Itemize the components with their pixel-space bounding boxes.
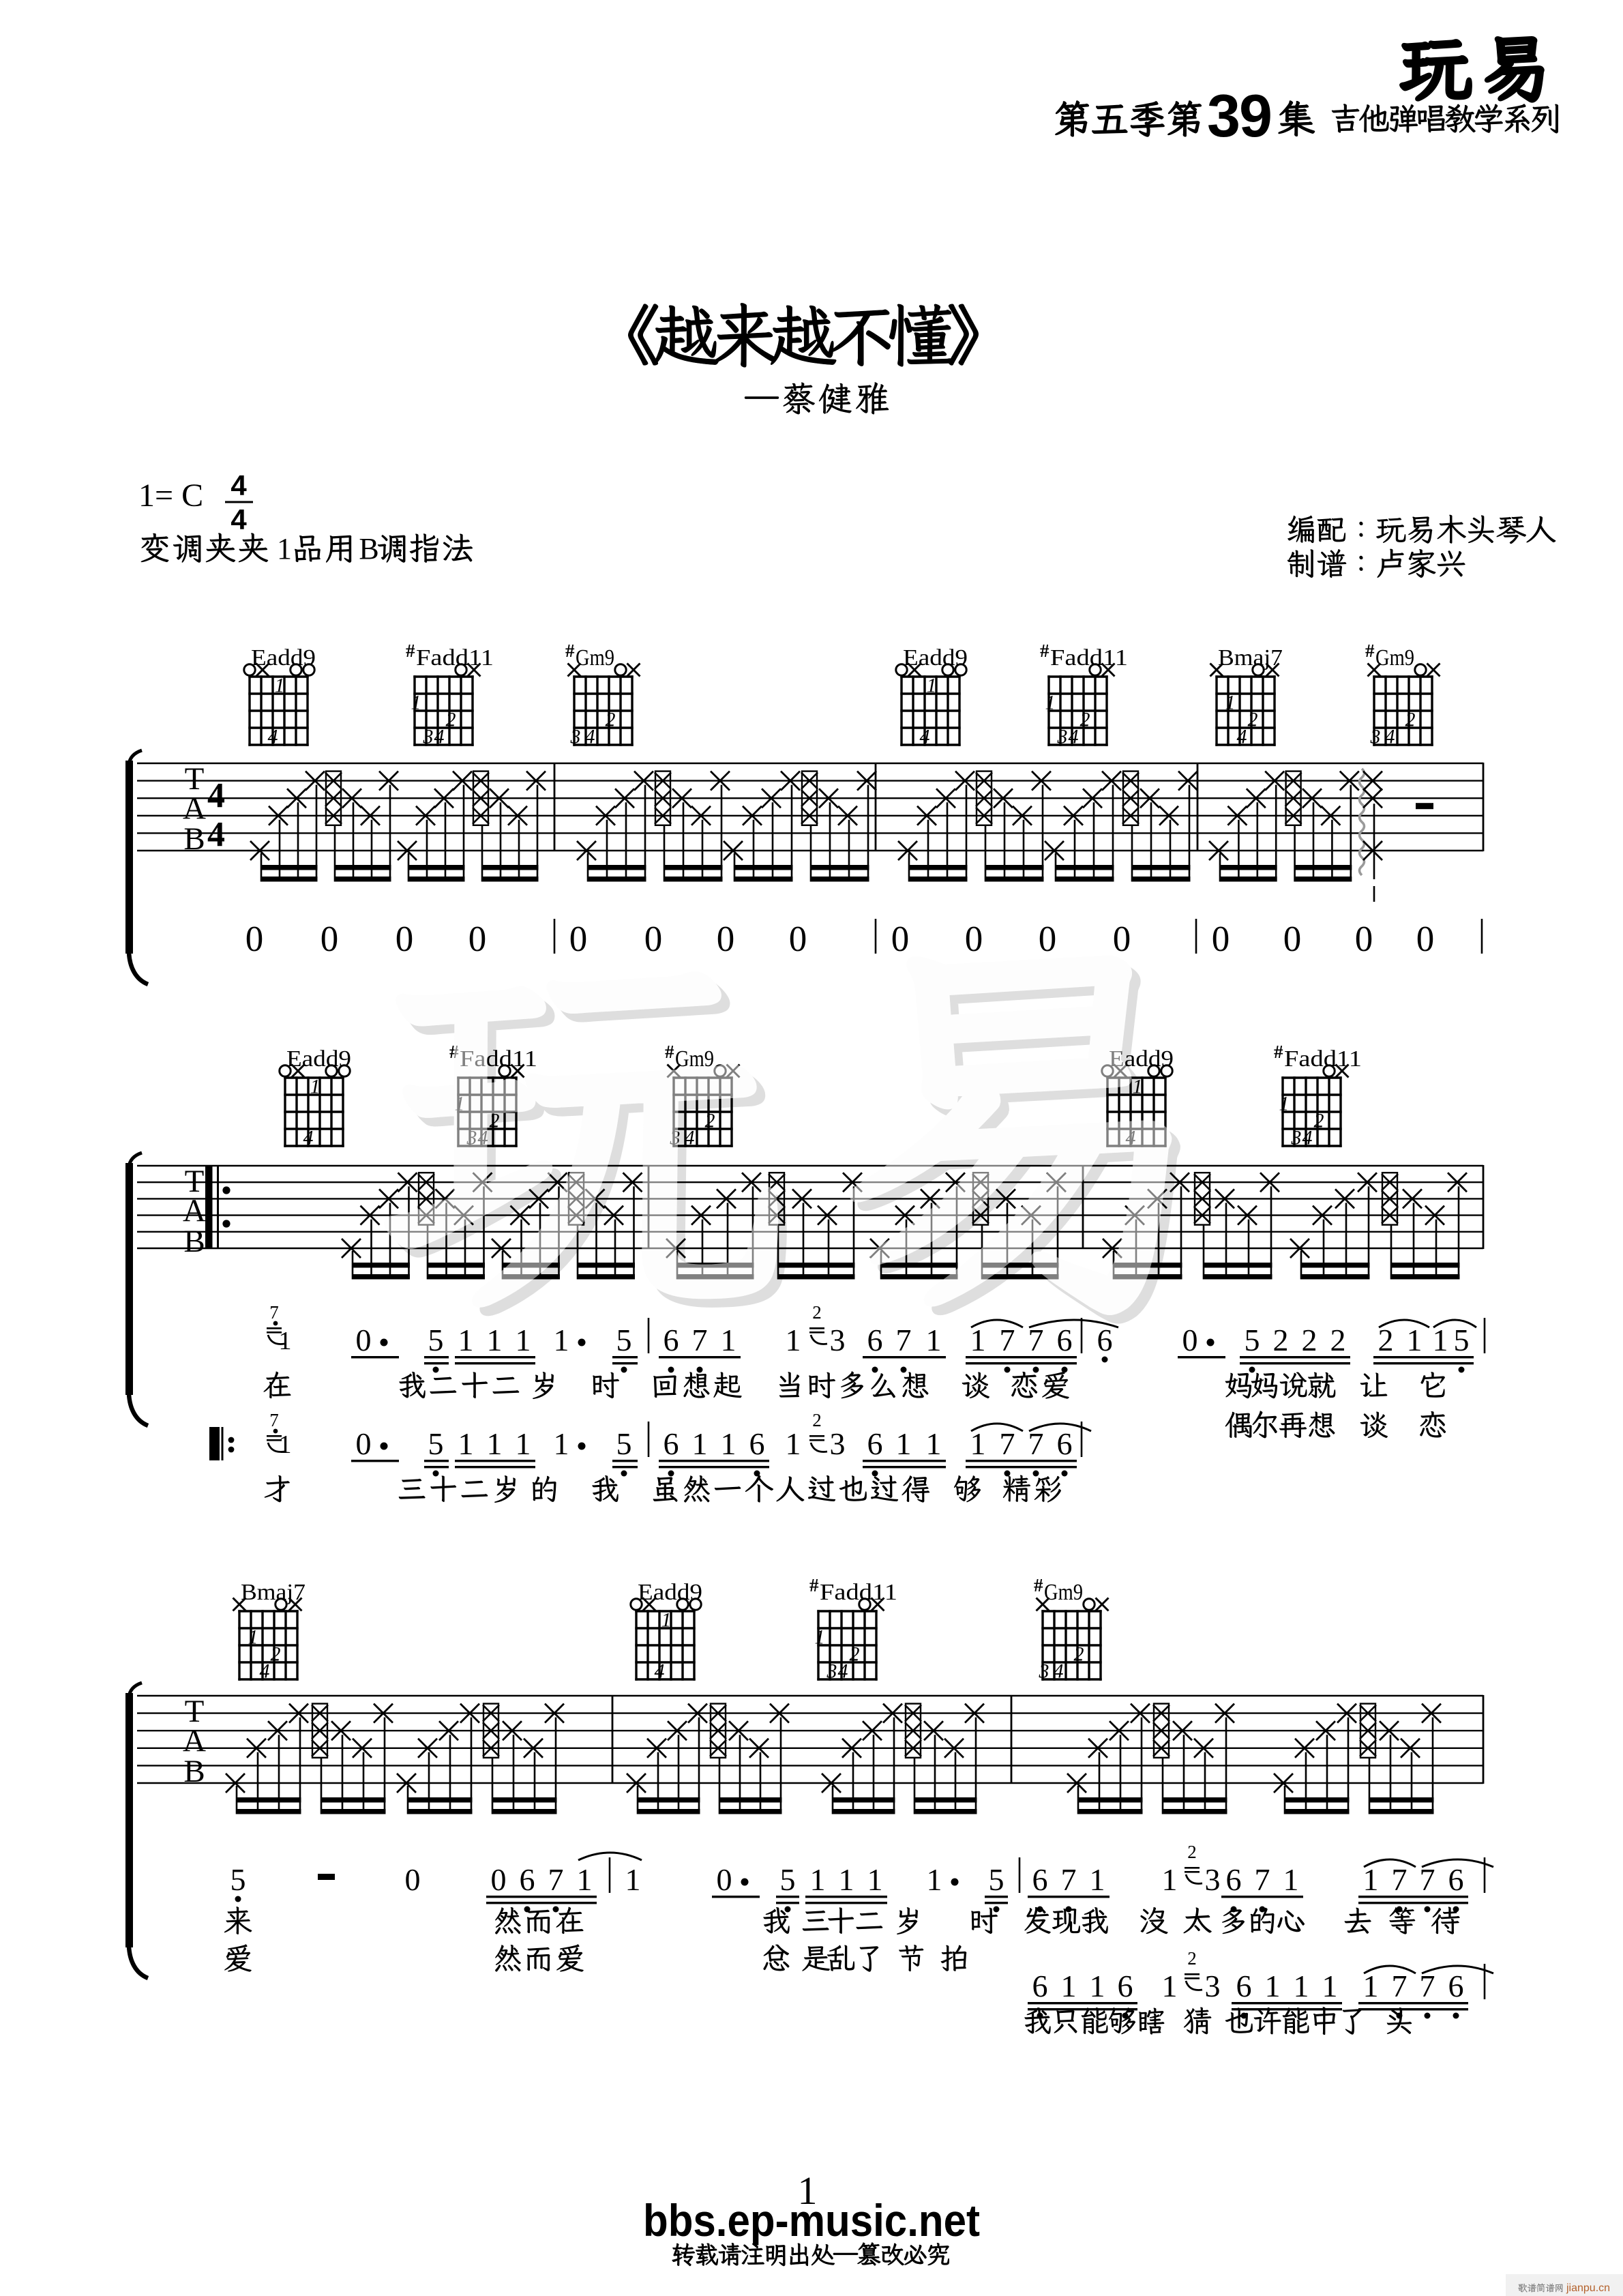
svg-text:1: 1 [896, 1426, 912, 1461]
svg-text:1: 1 [839, 1862, 854, 1897]
svg-text:1: 1 [1433, 1323, 1448, 1357]
svg-text:4: 4 [838, 1660, 848, 1683]
svg-text:1: 1 [926, 1426, 942, 1461]
svg-text:1: 1 [786, 1323, 801, 1357]
svg-text:2: 2 [1302, 1323, 1317, 1357]
svg-text:1: 1 [721, 1426, 736, 1461]
svg-text:0: 0 [717, 919, 735, 959]
svg-text:0: 0 [644, 919, 663, 959]
svg-text:3: 3 [570, 726, 581, 748]
svg-text:1= C: 1= C [138, 477, 203, 514]
svg-text:1: 1 [1265, 1969, 1281, 2003]
svg-text:1: 1 [867, 1862, 883, 1897]
svg-text:1: 1 [927, 1862, 942, 1897]
svg-text:5: 5 [428, 1323, 444, 1357]
svg-text:1: 1 [458, 1323, 474, 1357]
svg-text:1: 1 [487, 1426, 503, 1461]
svg-text:0: 0 [717, 1862, 732, 1897]
svg-text:3: 3 [827, 1660, 837, 1683]
svg-text:2: 2 [446, 709, 456, 731]
svg-text:1: 1 [926, 1323, 942, 1357]
svg-text:6: 6 [1057, 1426, 1073, 1461]
svg-text:0: 0 [356, 1323, 372, 1357]
svg-text:7: 7 [269, 1410, 279, 1430]
svg-text:1: 1 [279, 1327, 292, 1355]
svg-text:1: 1 [692, 1426, 708, 1461]
svg-text:1: 1 [810, 1862, 826, 1897]
svg-text:1: 1 [786, 1426, 801, 1461]
svg-text:6: 6 [1236, 1969, 1252, 2003]
svg-text:3: 3 [830, 1323, 846, 1357]
svg-text:0: 0 [356, 1426, 372, 1461]
svg-text:6: 6 [1118, 1969, 1133, 2003]
svg-text:1: 1 [970, 1426, 986, 1461]
svg-text:3: 3 [1039, 1660, 1049, 1683]
svg-text:1: 1 [458, 1426, 474, 1461]
svg-text:4: 4 [920, 726, 930, 748]
svg-text:2: 2 [705, 1110, 715, 1132]
svg-text:#: # [1040, 641, 1049, 661]
svg-text:7: 7 [1420, 1969, 1435, 2003]
svg-text:4: 4 [207, 776, 225, 815]
svg-text:#: # [809, 1575, 819, 1595]
svg-text:3: 3 [1205, 1969, 1221, 2003]
svg-text:7: 7 [1255, 1862, 1270, 1897]
svg-text:B: B [183, 821, 205, 857]
svg-text:6: 6 [1032, 1862, 1048, 1897]
svg-text:Fadd11: Fadd11 [416, 645, 494, 671]
svg-text:#: # [665, 1042, 674, 1062]
svg-text:4: 4 [1237, 726, 1247, 748]
svg-text:0: 0 [396, 919, 414, 959]
svg-text:2: 2 [1187, 1948, 1197, 1969]
svg-text:1: 1 [277, 532, 292, 565]
svg-text:4: 4 [230, 503, 247, 535]
svg-text:6: 6 [1057, 1323, 1073, 1357]
svg-text:jianpu.cn: jianpu.cn [1566, 2282, 1610, 2294]
svg-text:7: 7 [1061, 1862, 1077, 1897]
svg-text:B: B [359, 532, 378, 565]
svg-text:0: 0 [321, 919, 339, 959]
svg-text:1: 1 [516, 1426, 531, 1461]
svg-text:4: 4 [1302, 1127, 1313, 1149]
svg-text:4: 4 [1054, 1660, 1064, 1683]
svg-text:6: 6 [520, 1862, 535, 1897]
svg-text:1: 1 [487, 1323, 503, 1357]
svg-text:1: 1 [248, 1626, 258, 1649]
svg-text:2: 2 [1330, 1323, 1346, 1357]
svg-text:B: B [183, 1754, 205, 1789]
svg-text:3: 3 [1057, 726, 1068, 748]
svg-text:3: 3 [830, 1426, 846, 1461]
svg-text:Eadd9: Eadd9 [286, 1046, 351, 1072]
svg-text:5: 5 [428, 1426, 444, 1461]
svg-text:4: 4 [685, 1127, 695, 1149]
svg-text:2: 2 [1074, 1643, 1084, 1666]
svg-text:1: 1 [815, 1626, 825, 1649]
svg-text:1: 1 [1090, 1969, 1105, 2003]
svg-text:1: 1 [1322, 1969, 1338, 2003]
svg-text:5: 5 [989, 1862, 1004, 1897]
svg-text:1: 1 [661, 1609, 672, 1632]
svg-text:6: 6 [867, 1323, 883, 1357]
svg-text:2: 2 [812, 1302, 822, 1323]
svg-text:4: 4 [268, 726, 278, 748]
svg-text:2: 2 [1378, 1323, 1394, 1357]
svg-text:6: 6 [1448, 1969, 1464, 2003]
svg-text:1: 1 [1061, 1969, 1077, 2003]
svg-text:6: 6 [867, 1426, 883, 1461]
svg-text:Fadd11: Fadd11 [820, 1580, 897, 1605]
svg-text:5: 5 [616, 1426, 632, 1461]
svg-text:0: 0 [965, 919, 983, 959]
svg-text:2: 2 [271, 1643, 281, 1666]
svg-text:1: 1 [625, 1862, 641, 1897]
svg-text:7: 7 [1000, 1426, 1015, 1461]
svg-text:3: 3 [1291, 1127, 1302, 1149]
svg-text:0: 0 [1039, 919, 1057, 959]
svg-text:1: 1 [1225, 692, 1236, 714]
svg-text:0: 0 [891, 919, 910, 959]
svg-text:#: # [1034, 1575, 1043, 1595]
svg-text:1: 1 [275, 675, 285, 697]
svg-text:0: 0 [1283, 919, 1302, 959]
svg-text:2: 2 [1273, 1323, 1289, 1357]
svg-text:1: 1 [411, 692, 421, 714]
svg-text:7: 7 [1420, 1862, 1435, 1897]
svg-text:6: 6 [1032, 1969, 1048, 2003]
svg-text:0: 0 [1182, 1323, 1198, 1357]
svg-text:1: 1 [1279, 1093, 1290, 1115]
svg-text:4: 4 [303, 1127, 314, 1149]
svg-text:1: 1 [554, 1426, 569, 1461]
svg-text:0: 0 [569, 919, 588, 959]
svg-text:4: 4 [655, 1660, 665, 1683]
svg-text:7: 7 [269, 1302, 279, 1323]
svg-text:Gm9: Gm9 [1375, 645, 1414, 671]
svg-text:2: 2 [850, 1643, 860, 1666]
svg-text:1: 1 [279, 1430, 292, 1459]
svg-text:Gm9: Gm9 [576, 645, 614, 671]
svg-text:Eadd9: Eadd9 [903, 645, 968, 671]
svg-text:6: 6 [749, 1426, 765, 1461]
svg-text:5: 5 [780, 1862, 796, 1897]
svg-text:1: 1 [1090, 1862, 1105, 1897]
svg-text:1: 1 [516, 1323, 531, 1357]
svg-text:1: 1 [1133, 1076, 1143, 1098]
svg-text:1: 1 [1294, 1969, 1309, 2003]
svg-text:4: 4 [434, 726, 445, 748]
svg-text:1: 1 [927, 675, 937, 697]
svg-text:7: 7 [1392, 1862, 1408, 1897]
svg-text:2: 2 [812, 1410, 822, 1430]
svg-text:B: B [183, 1224, 205, 1259]
svg-text:39: 39 [1207, 82, 1271, 149]
svg-text:1: 1 [1363, 1969, 1379, 2003]
svg-text:Eadd9: Eadd9 [251, 645, 316, 671]
svg-text:4: 4 [585, 726, 595, 748]
svg-text:7: 7 [896, 1323, 912, 1357]
svg-text:1: 1 [310, 1076, 321, 1098]
svg-text:Bmaj7: Bmaj7 [241, 1580, 306, 1605]
svg-text:1: 1 [1363, 1862, 1379, 1897]
svg-text:6: 6 [1226, 1862, 1242, 1897]
svg-text:Fadd11: Fadd11 [1050, 645, 1128, 671]
svg-text:0: 0 [1416, 919, 1435, 959]
svg-text:2: 2 [1187, 1842, 1197, 1862]
svg-text:5: 5 [230, 1862, 246, 1897]
svg-text:4: 4 [207, 815, 225, 854]
svg-text:2: 2 [1080, 709, 1090, 731]
svg-text:4: 4 [1385, 726, 1395, 748]
svg-text:#: # [565, 641, 575, 661]
svg-text:1: 1 [1162, 1862, 1178, 1897]
svg-text:1: 1 [721, 1323, 736, 1357]
svg-text:2: 2 [1248, 709, 1258, 731]
svg-text:Fadd11: Fadd11 [1284, 1046, 1362, 1072]
svg-text:Bmaj7: Bmaj7 [1218, 645, 1283, 671]
svg-text:1: 1 [1283, 1862, 1299, 1897]
svg-text:bbs.ep-music.net: bbs.ep-music.net [643, 2195, 980, 2246]
svg-text:0: 0 [468, 919, 487, 959]
svg-text:7: 7 [1000, 1323, 1015, 1357]
svg-text:7: 7 [1392, 1969, 1408, 2003]
svg-text:6: 6 [664, 1323, 679, 1357]
svg-text:Gm9: Gm9 [1044, 1580, 1083, 1605]
svg-text:2: 2 [1314, 1110, 1324, 1132]
svg-text:0: 0 [1113, 919, 1131, 959]
svg-text:0: 0 [1212, 919, 1230, 959]
svg-text:3: 3 [1370, 726, 1381, 748]
svg-text:5: 5 [1454, 1323, 1470, 1357]
svg-text:0: 0 [245, 919, 264, 959]
svg-text:#: # [1365, 641, 1375, 661]
svg-text:7: 7 [548, 1862, 564, 1897]
svg-text:5: 5 [1245, 1323, 1260, 1357]
svg-text:2: 2 [1405, 709, 1416, 731]
svg-text:0: 0 [789, 919, 807, 959]
svg-text:1: 1 [970, 1323, 986, 1357]
svg-text:1: 1 [577, 1862, 593, 1897]
svg-text:4: 4 [230, 469, 247, 501]
svg-text:1: 1 [1407, 1323, 1423, 1357]
svg-text:0: 0 [1355, 919, 1373, 959]
svg-text:5: 5 [616, 1323, 632, 1357]
svg-text:4: 4 [260, 1660, 270, 1683]
svg-text:4: 4 [1069, 726, 1079, 748]
svg-text:3: 3 [1205, 1862, 1221, 1897]
svg-text:0: 0 [491, 1862, 507, 1897]
svg-text:6: 6 [1097, 1323, 1113, 1357]
svg-text:1: 1 [1162, 1969, 1178, 2003]
svg-text:1: 1 [1045, 692, 1056, 714]
svg-text:Eadd9: Eadd9 [638, 1580, 702, 1605]
svg-text:6: 6 [1448, 1862, 1464, 1897]
svg-text:7: 7 [692, 1323, 708, 1357]
svg-text:0: 0 [405, 1862, 421, 1897]
svg-text:3: 3 [423, 726, 434, 748]
svg-text:6: 6 [664, 1426, 679, 1461]
svg-text:1: 1 [554, 1323, 569, 1357]
svg-text:2: 2 [606, 709, 616, 731]
svg-text:#: # [406, 641, 415, 661]
svg-text:#: # [1274, 1042, 1283, 1062]
